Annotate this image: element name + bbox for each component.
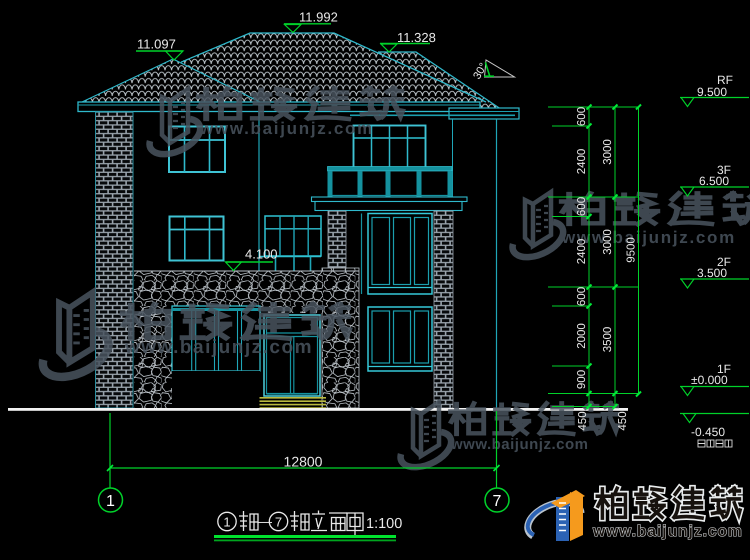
svg-text:1:100: 1:100	[366, 516, 402, 532]
svg-text:4.100: 4.100	[245, 247, 278, 262]
svg-text:7: 7	[275, 515, 282, 530]
svg-text:600: 600	[576, 107, 588, 126]
svg-text:1: 1	[223, 515, 230, 530]
svg-text:7: 7	[493, 493, 502, 510]
svg-text:±0.000: ±0.000	[691, 373, 728, 387]
svg-text:9500: 9500	[626, 237, 638, 263]
svg-text:www.baijunjz.com: www.baijunjz.com	[450, 436, 588, 453]
svg-text:6.500: 6.500	[699, 174, 729, 188]
svg-text:3500: 3500	[602, 327, 614, 353]
svg-text:3.500: 3.500	[697, 266, 727, 280]
svg-text:11.328: 11.328	[397, 30, 436, 45]
svg-text:-0.450: -0.450	[691, 425, 725, 439]
svg-text:3000: 3000	[602, 229, 614, 255]
svg-text:450: 450	[617, 411, 629, 430]
svg-text:900: 900	[576, 370, 588, 389]
svg-text:12800: 12800	[284, 454, 323, 470]
svg-text:11.992: 11.992	[299, 10, 338, 25]
svg-text:1: 1	[106, 493, 115, 510]
svg-text:450: 450	[577, 411, 589, 430]
svg-text:11.097: 11.097	[137, 37, 176, 52]
svg-text:www.baijunjz.com: www.baijunjz.com	[124, 337, 313, 358]
svg-text:600: 600	[576, 197, 588, 216]
svg-text:9.500: 9.500	[697, 85, 727, 99]
svg-text:www.baijunjz.com: www.baijunjz.com	[592, 523, 743, 540]
svg-text:2000: 2000	[576, 323, 588, 349]
svg-text:600: 600	[576, 287, 588, 306]
svg-text:2400: 2400	[576, 239, 588, 265]
svg-text:www.baijunjz.com: www.baijunjz.com	[199, 119, 374, 138]
svg-text:2400: 2400	[576, 149, 588, 175]
svg-text:3000: 3000	[602, 139, 614, 165]
